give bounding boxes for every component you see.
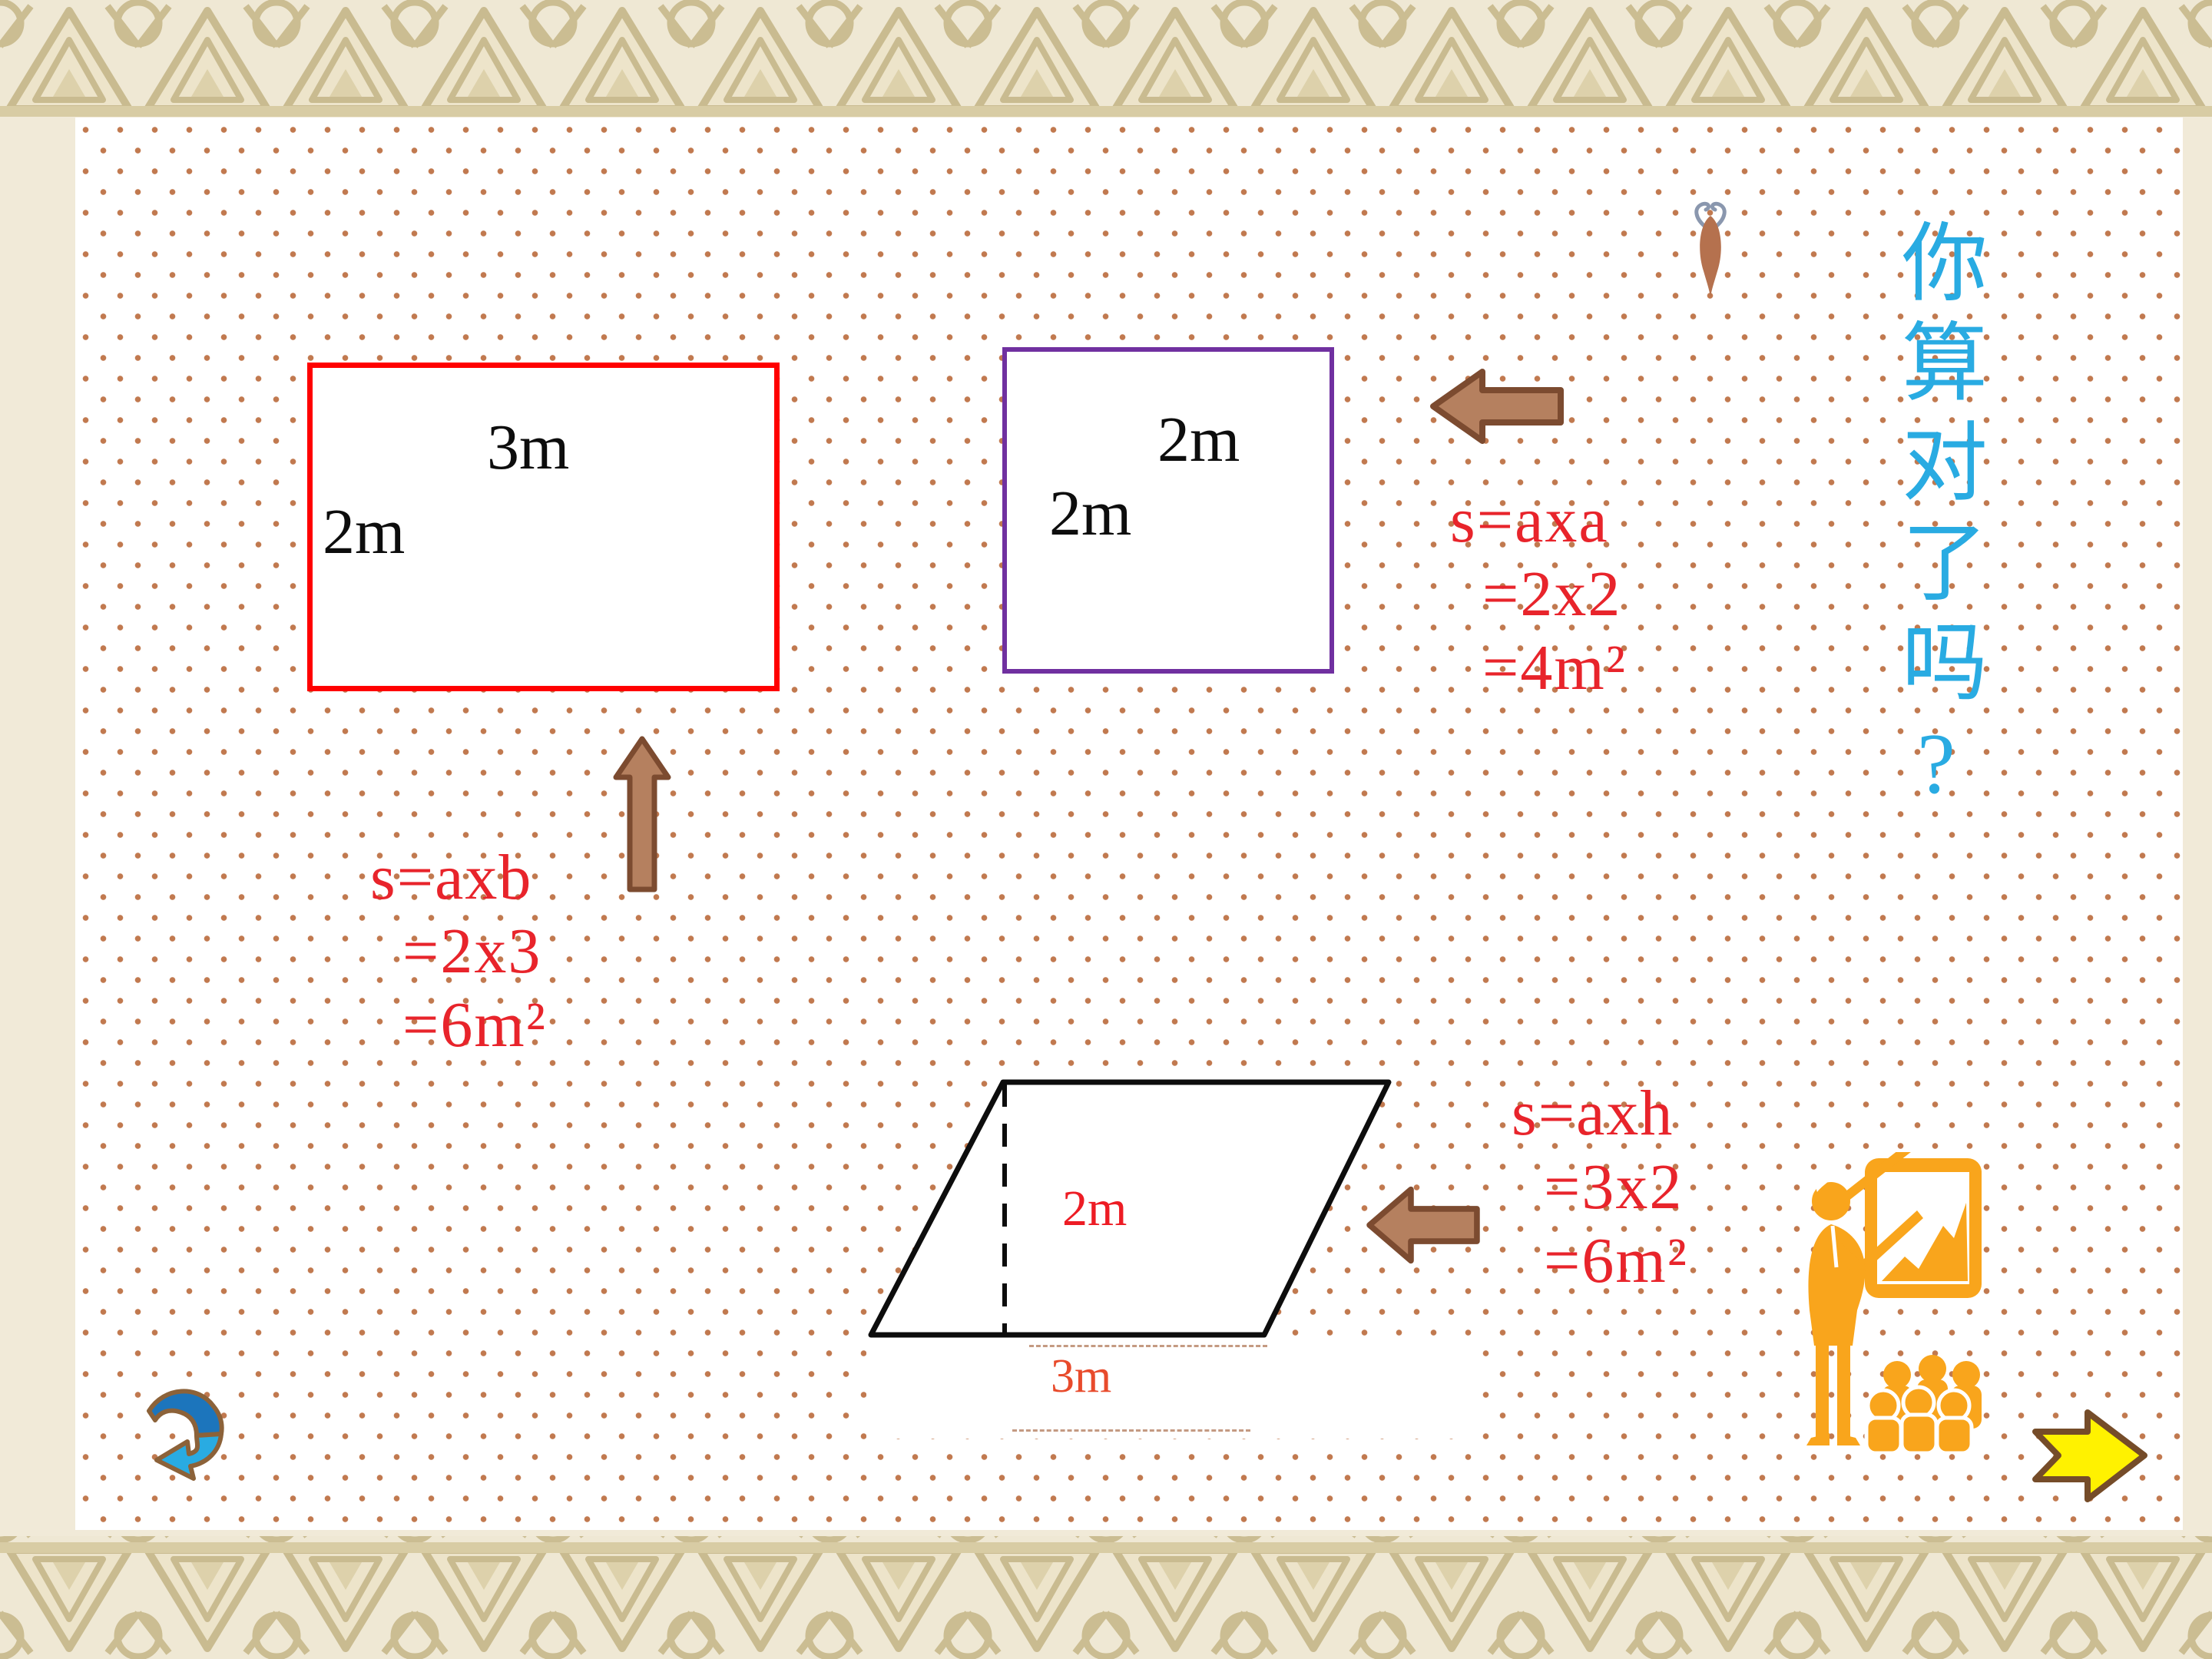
parallelogram-height-label: 2m	[1062, 1184, 1127, 1234]
formula-line: =6m²	[1512, 1224, 1688, 1298]
curved-back-arrow-icon[interactable]	[135, 1377, 232, 1491]
tribal-triangle-pattern-icon	[0, 1536, 2212, 1659]
formula-line: s=axa	[1450, 484, 1627, 558]
parallelogram-formula: s=axh =3x2 =6m²	[1512, 1077, 1688, 1298]
up-arrow-icon	[613, 736, 671, 893]
rectangle-width-label: 3m	[487, 416, 569, 480]
square-side-label: 2m	[1049, 482, 1131, 546]
square-formula: s=axa =2x2 =4m²	[1450, 484, 1627, 705]
rectangle-formula: s=axb =2x3 =6m²	[370, 841, 547, 1062]
bottom-border-pattern	[0, 1536, 2212, 1659]
parallelogram-left-arrow-icon	[1366, 1177, 1481, 1273]
formula-line: =3x2	[1512, 1151, 1688, 1224]
square-top-label: 2m	[1157, 408, 1240, 472]
formula-line: s=axh	[1512, 1077, 1688, 1151]
vertical-question-text: 你算对了吗?	[1879, 217, 1994, 839]
parallelogram-base-label: 3m	[1051, 1353, 1111, 1400]
dash-guide-line	[1012, 1429, 1250, 1432]
back-arrow-button[interactable]	[135, 1377, 232, 1491]
rectangle-height-label: 2m	[323, 500, 405, 565]
dash-guide-line	[1029, 1345, 1267, 1347]
slide: 3m 2m 2m 2m s=axa =2x2 =4m² 你算对了吗?	[0, 0, 2212, 1659]
next-arrow-button[interactable]	[2028, 1406, 2151, 1509]
formula-line: s=axb	[370, 841, 547, 915]
next-arrow-icon[interactable]	[2028, 1406, 2151, 1509]
formula-line: =2x3	[370, 915, 547, 988]
presenter-clipart	[1788, 1152, 1989, 1453]
formula-line: =6m²	[370, 988, 547, 1062]
square-left-arrow-icon	[1429, 367, 1565, 445]
top-border-pattern	[0, 0, 2212, 117]
bug-icon	[1687, 196, 1734, 302]
presenter-at-board-icon	[1788, 1152, 1989, 1453]
tribal-triangle-pattern-icon	[0, 0, 2212, 117]
parallelogram-shape	[859, 1070, 1399, 1343]
content-area: 3m 2m 2m 2m s=axa =2x2 =4m² 你算对了吗?	[75, 118, 2183, 1530]
formula-line: =2x2	[1450, 558, 1627, 631]
formula-line: =4m²	[1450, 631, 1627, 705]
base-guide-strip	[866, 1340, 1481, 1439]
